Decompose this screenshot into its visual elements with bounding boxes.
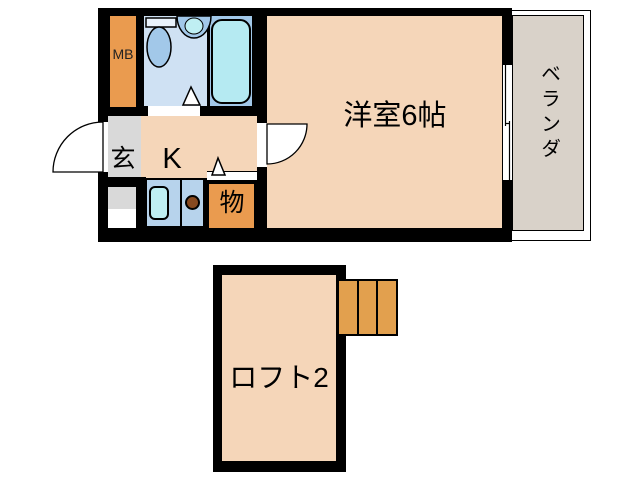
- kitchen-label: K: [152, 144, 192, 174]
- loft-label: ロフト2: [209, 363, 349, 392]
- storage-door-strip: [207, 171, 257, 180]
- entrance-step-white: [108, 209, 136, 228]
- entrance-label: 玄: [103, 146, 143, 172]
- main-room-label: 洋室6帖: [295, 101, 495, 131]
- loft-ladder-icon: [337, 279, 398, 336]
- kitchen-sink: [149, 186, 169, 220]
- meter-box-label: MB: [106, 47, 140, 62]
- ladder-step: [357, 281, 377, 334]
- bathtub-area: [210, 16, 252, 106]
- ladder-step: [376, 281, 396, 334]
- entrance-step-gray: [108, 187, 136, 209]
- stove-burner-icon: [185, 195, 200, 210]
- bathroom-door-gap: [148, 106, 200, 116]
- main-room-door-gap: [257, 123, 267, 167]
- veranda-label: ベランダ: [536, 45, 560, 180]
- entrance-door-arc: [53, 122, 103, 172]
- ladder-step: [339, 281, 357, 334]
- counter-divider: [180, 178, 182, 228]
- bathroom-area: [144, 16, 207, 106]
- floorplan-canvas: 洋室6帖 K 玄 物 MB ベランダ ロフト2: [0, 0, 640, 480]
- storage-label: 物: [212, 190, 252, 216]
